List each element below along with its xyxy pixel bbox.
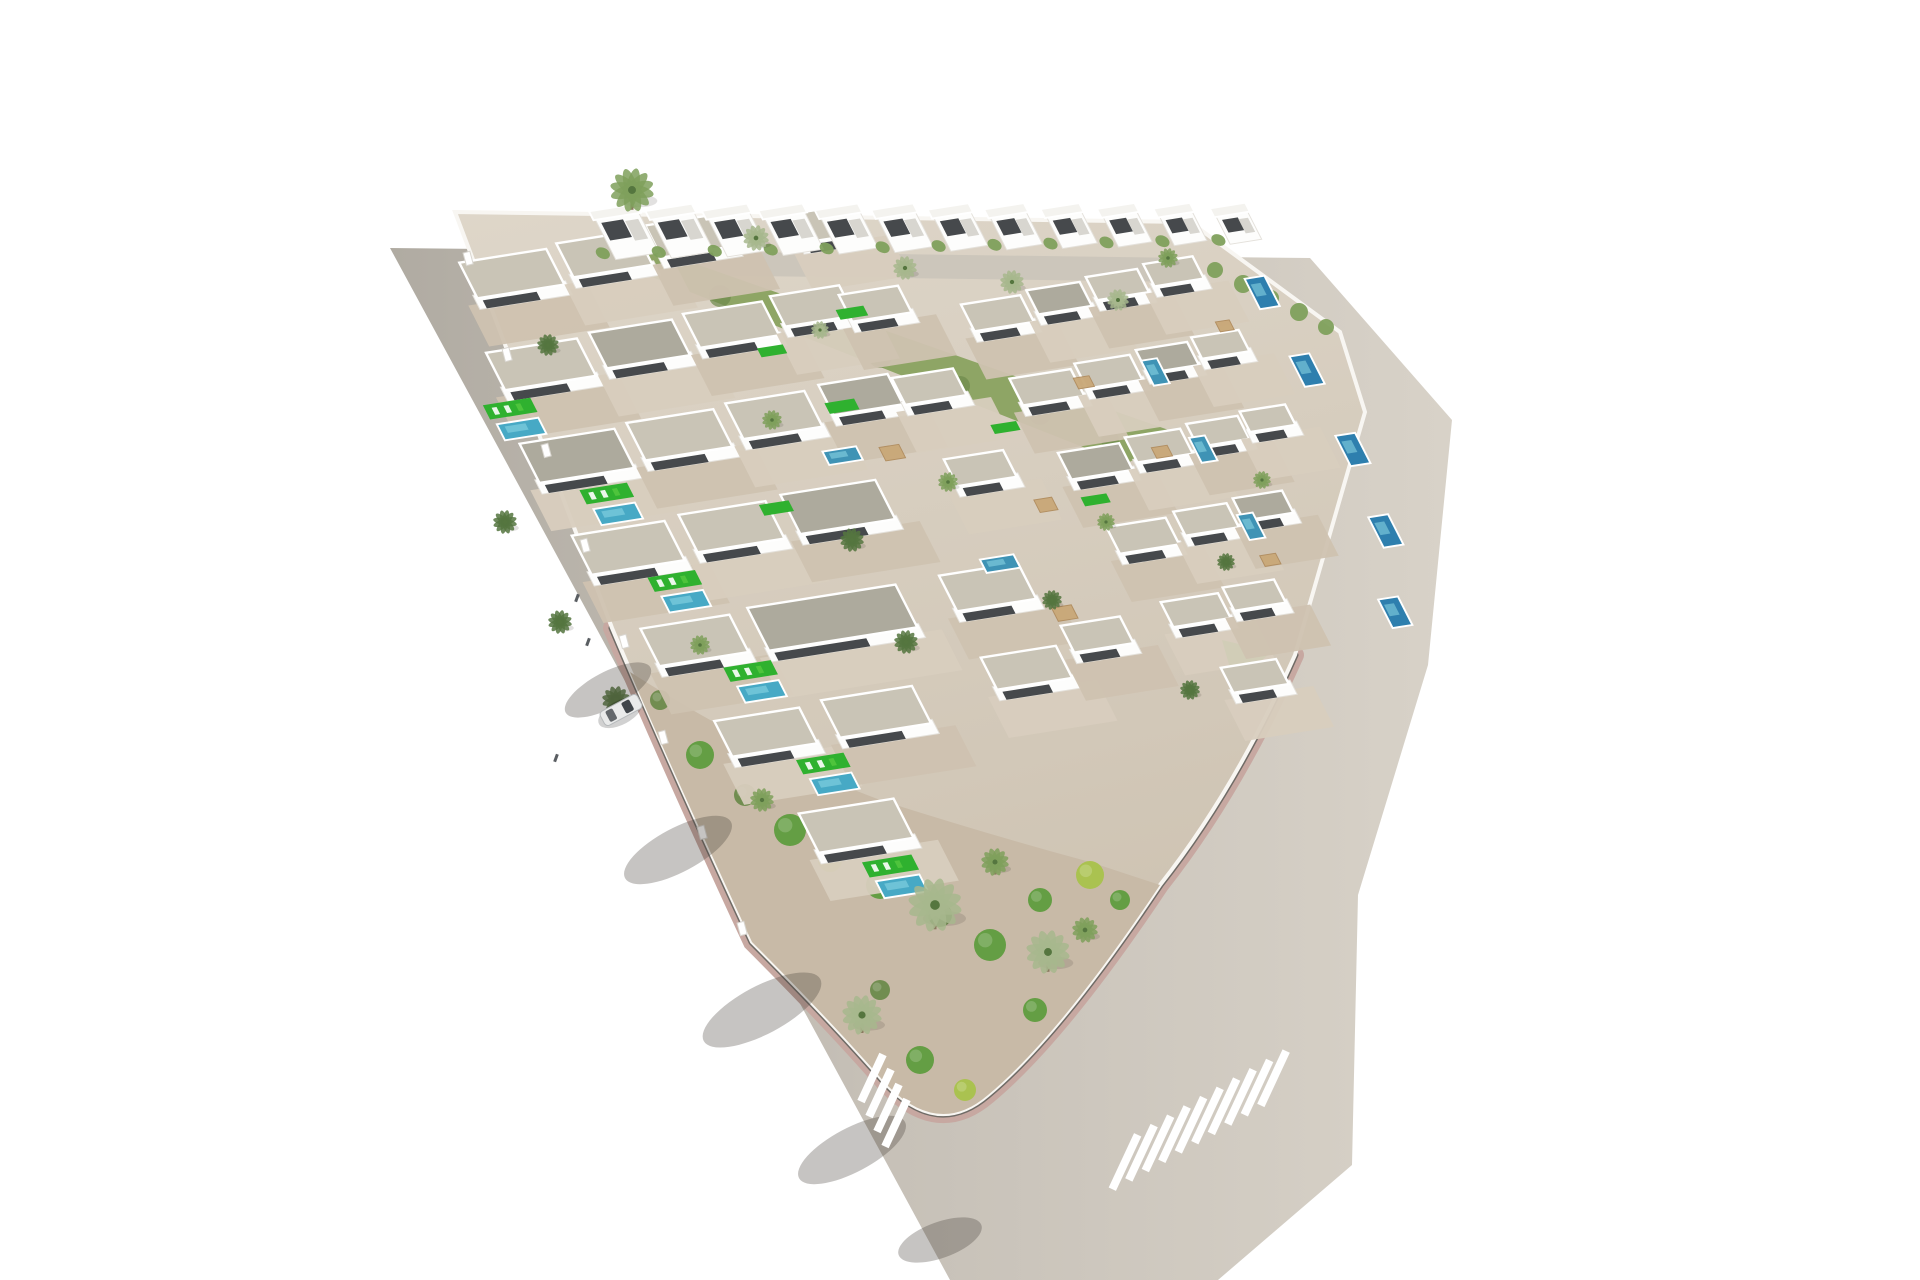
hedge-tree: [1207, 262, 1223, 278]
palm-crown: [858, 1011, 865, 1018]
palm-crown: [930, 900, 940, 910]
palm-crown: [1104, 520, 1107, 523]
aerial-render-page: [0, 0, 1920, 1280]
pedestrian: [585, 638, 591, 647]
palm-crown: [698, 643, 702, 647]
palm-crown: [754, 236, 759, 241]
palm-crown: [1050, 598, 1054, 602]
palm-crown: [503, 520, 507, 524]
palm-crown: [903, 266, 907, 270]
palm-crown: [850, 538, 854, 542]
pedestrian: [574, 594, 580, 603]
hedge-tree: [1290, 303, 1308, 321]
palm-crown: [1116, 298, 1120, 302]
palm-tree: [547, 609, 573, 634]
palm-crown: [1166, 256, 1170, 260]
palm-crown: [558, 620, 562, 624]
palm-crown: [818, 328, 821, 331]
palm-crown: [1188, 688, 1192, 692]
palm-crown: [946, 480, 950, 484]
palm-crown: [1224, 560, 1227, 563]
palm-crown: [1044, 948, 1052, 956]
hedge-tree: [1318, 319, 1334, 335]
aerial-site-render: [0, 0, 1920, 1280]
palm-crown: [992, 859, 997, 864]
palm-crown: [546, 343, 550, 347]
pedestrian: [553, 754, 559, 763]
palm-crown: [1083, 928, 1088, 933]
palm-crown: [1010, 280, 1014, 284]
palm-crown: [1260, 478, 1263, 481]
palm-crown: [628, 186, 636, 194]
palm-tree: [492, 509, 518, 534]
palm-crown: [770, 418, 774, 422]
palm-crown: [904, 640, 908, 644]
palm-crown: [760, 798, 764, 802]
